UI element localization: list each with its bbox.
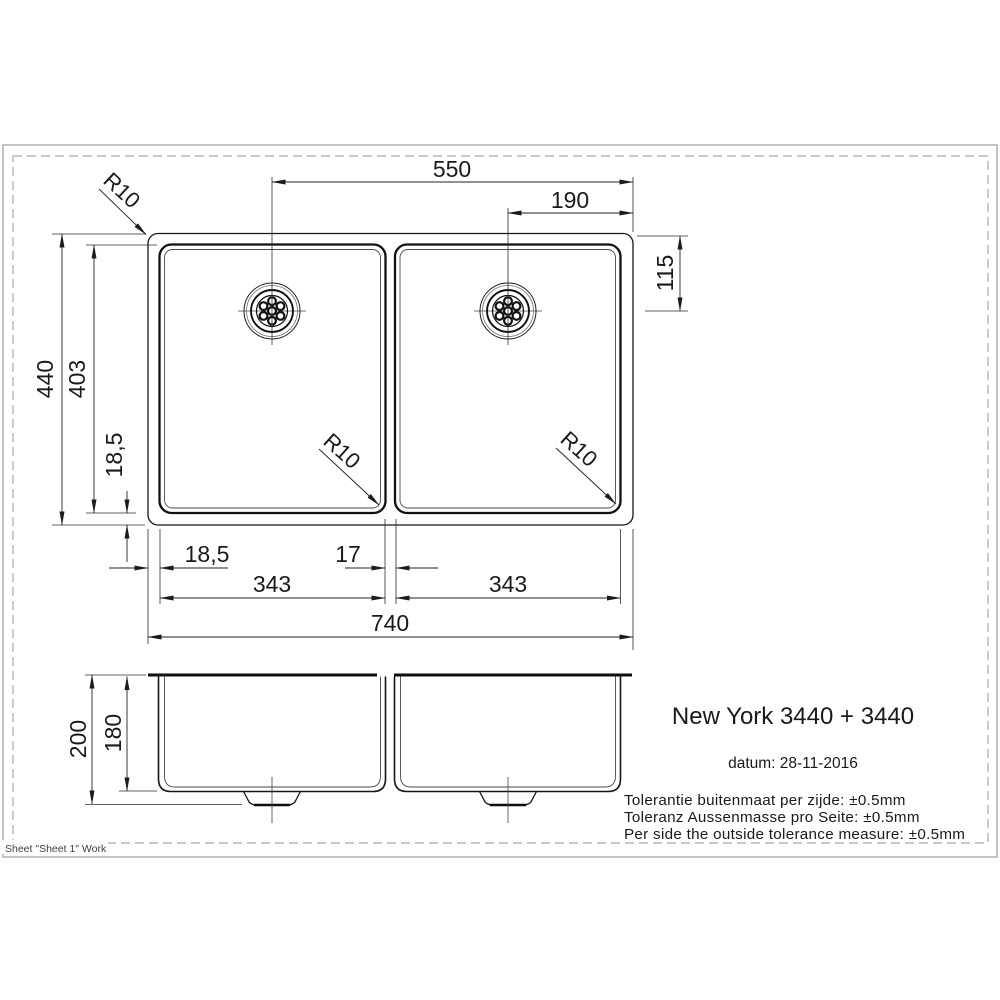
- left-bowl-section-inner: [165, 677, 381, 788]
- sink-technical-drawing: 550 190 115 440 403 18,5 18,5 17 343 343…: [0, 0, 1000, 1000]
- tolerance-line-en: Per side the outside tolerance measure: …: [624, 826, 965, 843]
- left-bowl-section-outer: [159, 677, 386, 792]
- dim-label-18-5-bottom: 18,5: [185, 541, 230, 567]
- dim-label-740: 740: [371, 610, 409, 636]
- dim-label-343-left: 343: [253, 571, 291, 597]
- sheet-borders: [3, 145, 997, 857]
- dim-label-17: 17: [335, 541, 361, 567]
- dim-label-440: 440: [32, 360, 58, 398]
- sheet-label: Sheet "Sheet 1" Work: [5, 843, 107, 855]
- title-block: New York 3440 + 3440 datum: 28-11-2016 T…: [624, 703, 965, 843]
- dim-label-115: 115: [652, 255, 678, 292]
- tolerance-line-de: Toleranz Aussenmasse pro Seite: ±0.5mm: [624, 809, 920, 826]
- radius-label-top-left: R10: [99, 167, 146, 213]
- dim-label-200: 200: [65, 720, 91, 758]
- side-view: 200 180: [65, 675, 632, 823]
- dim-label-18-5-left: 18,5: [101, 433, 127, 478]
- dim-label-190: 190: [551, 187, 589, 213]
- radius-label-left-bowl: R10: [319, 428, 366, 474]
- date-label: datum: 28-11-2016: [728, 755, 858, 772]
- top-view: 550 190 115 440 403 18,5 18,5 17 343 343…: [32, 156, 688, 650]
- model-title: New York 3440 + 3440: [672, 703, 914, 730]
- dim-label-343-right: 343: [489, 571, 527, 597]
- drawing-sheet: 550 190 115 440 403 18,5 18,5 17 343 343…: [0, 0, 1000, 1000]
- outer-sheet-border: [3, 145, 997, 857]
- left-bowl-outline: [160, 245, 386, 514]
- top-view-dimension-lines: [62, 182, 680, 637]
- sink-outer-contour: [148, 234, 633, 526]
- right-bowl-section-outer: [395, 677, 621, 792]
- right-bowl-section-inner: [401, 677, 616, 788]
- dim-label-180: 180: [100, 714, 126, 752]
- tolerance-line-nl: Tolerantie buitenmaat per zijde: ±0.5mm: [624, 792, 906, 809]
- radius-label-right-bowl: R10: [556, 426, 603, 472]
- dim-label-550: 550: [433, 156, 471, 182]
- dim-label-403: 403: [64, 360, 90, 398]
